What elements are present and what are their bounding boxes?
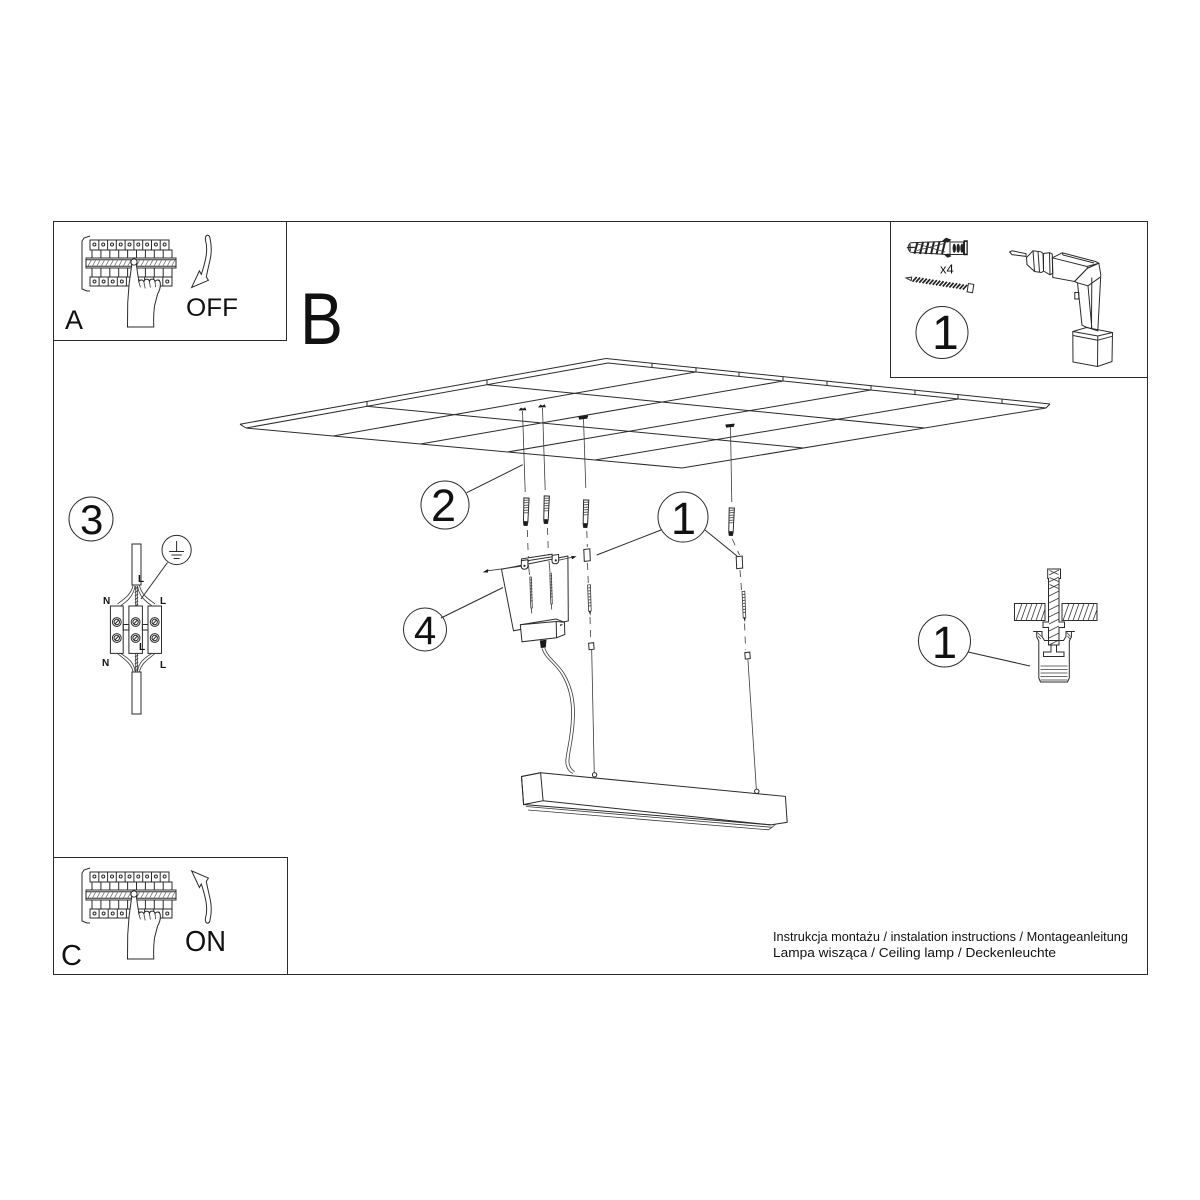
svg-text:2: 2 [431,480,456,531]
svg-text:ON: ON [185,926,226,958]
svg-text:L: L [138,574,144,585]
svg-text:B: B [300,279,343,360]
svg-text:Instrukcja montażu / instalati: Instrukcja montażu / instalation instruc… [773,929,1128,944]
svg-text:N: N [102,658,109,669]
svg-text:A: A [65,305,83,335]
svg-text:L: L [160,596,166,607]
svg-text:OFF: OFF [186,294,238,322]
svg-text:C: C [61,940,82,972]
svg-text:Lampa wisząca / Ceiling lamp /: Lampa wisząca / Ceiling lamp / Deckenleu… [773,945,1056,960]
svg-text:x4: x4 [940,262,954,277]
svg-text:1: 1 [932,617,957,668]
svg-text:N: N [103,596,110,607]
svg-text:4: 4 [414,609,436,653]
svg-text:L: L [160,660,166,671]
svg-text:3: 3 [80,496,103,543]
svg-text:L: L [139,642,145,653]
svg-text:1: 1 [932,307,959,360]
svg-text:1: 1 [671,493,696,544]
